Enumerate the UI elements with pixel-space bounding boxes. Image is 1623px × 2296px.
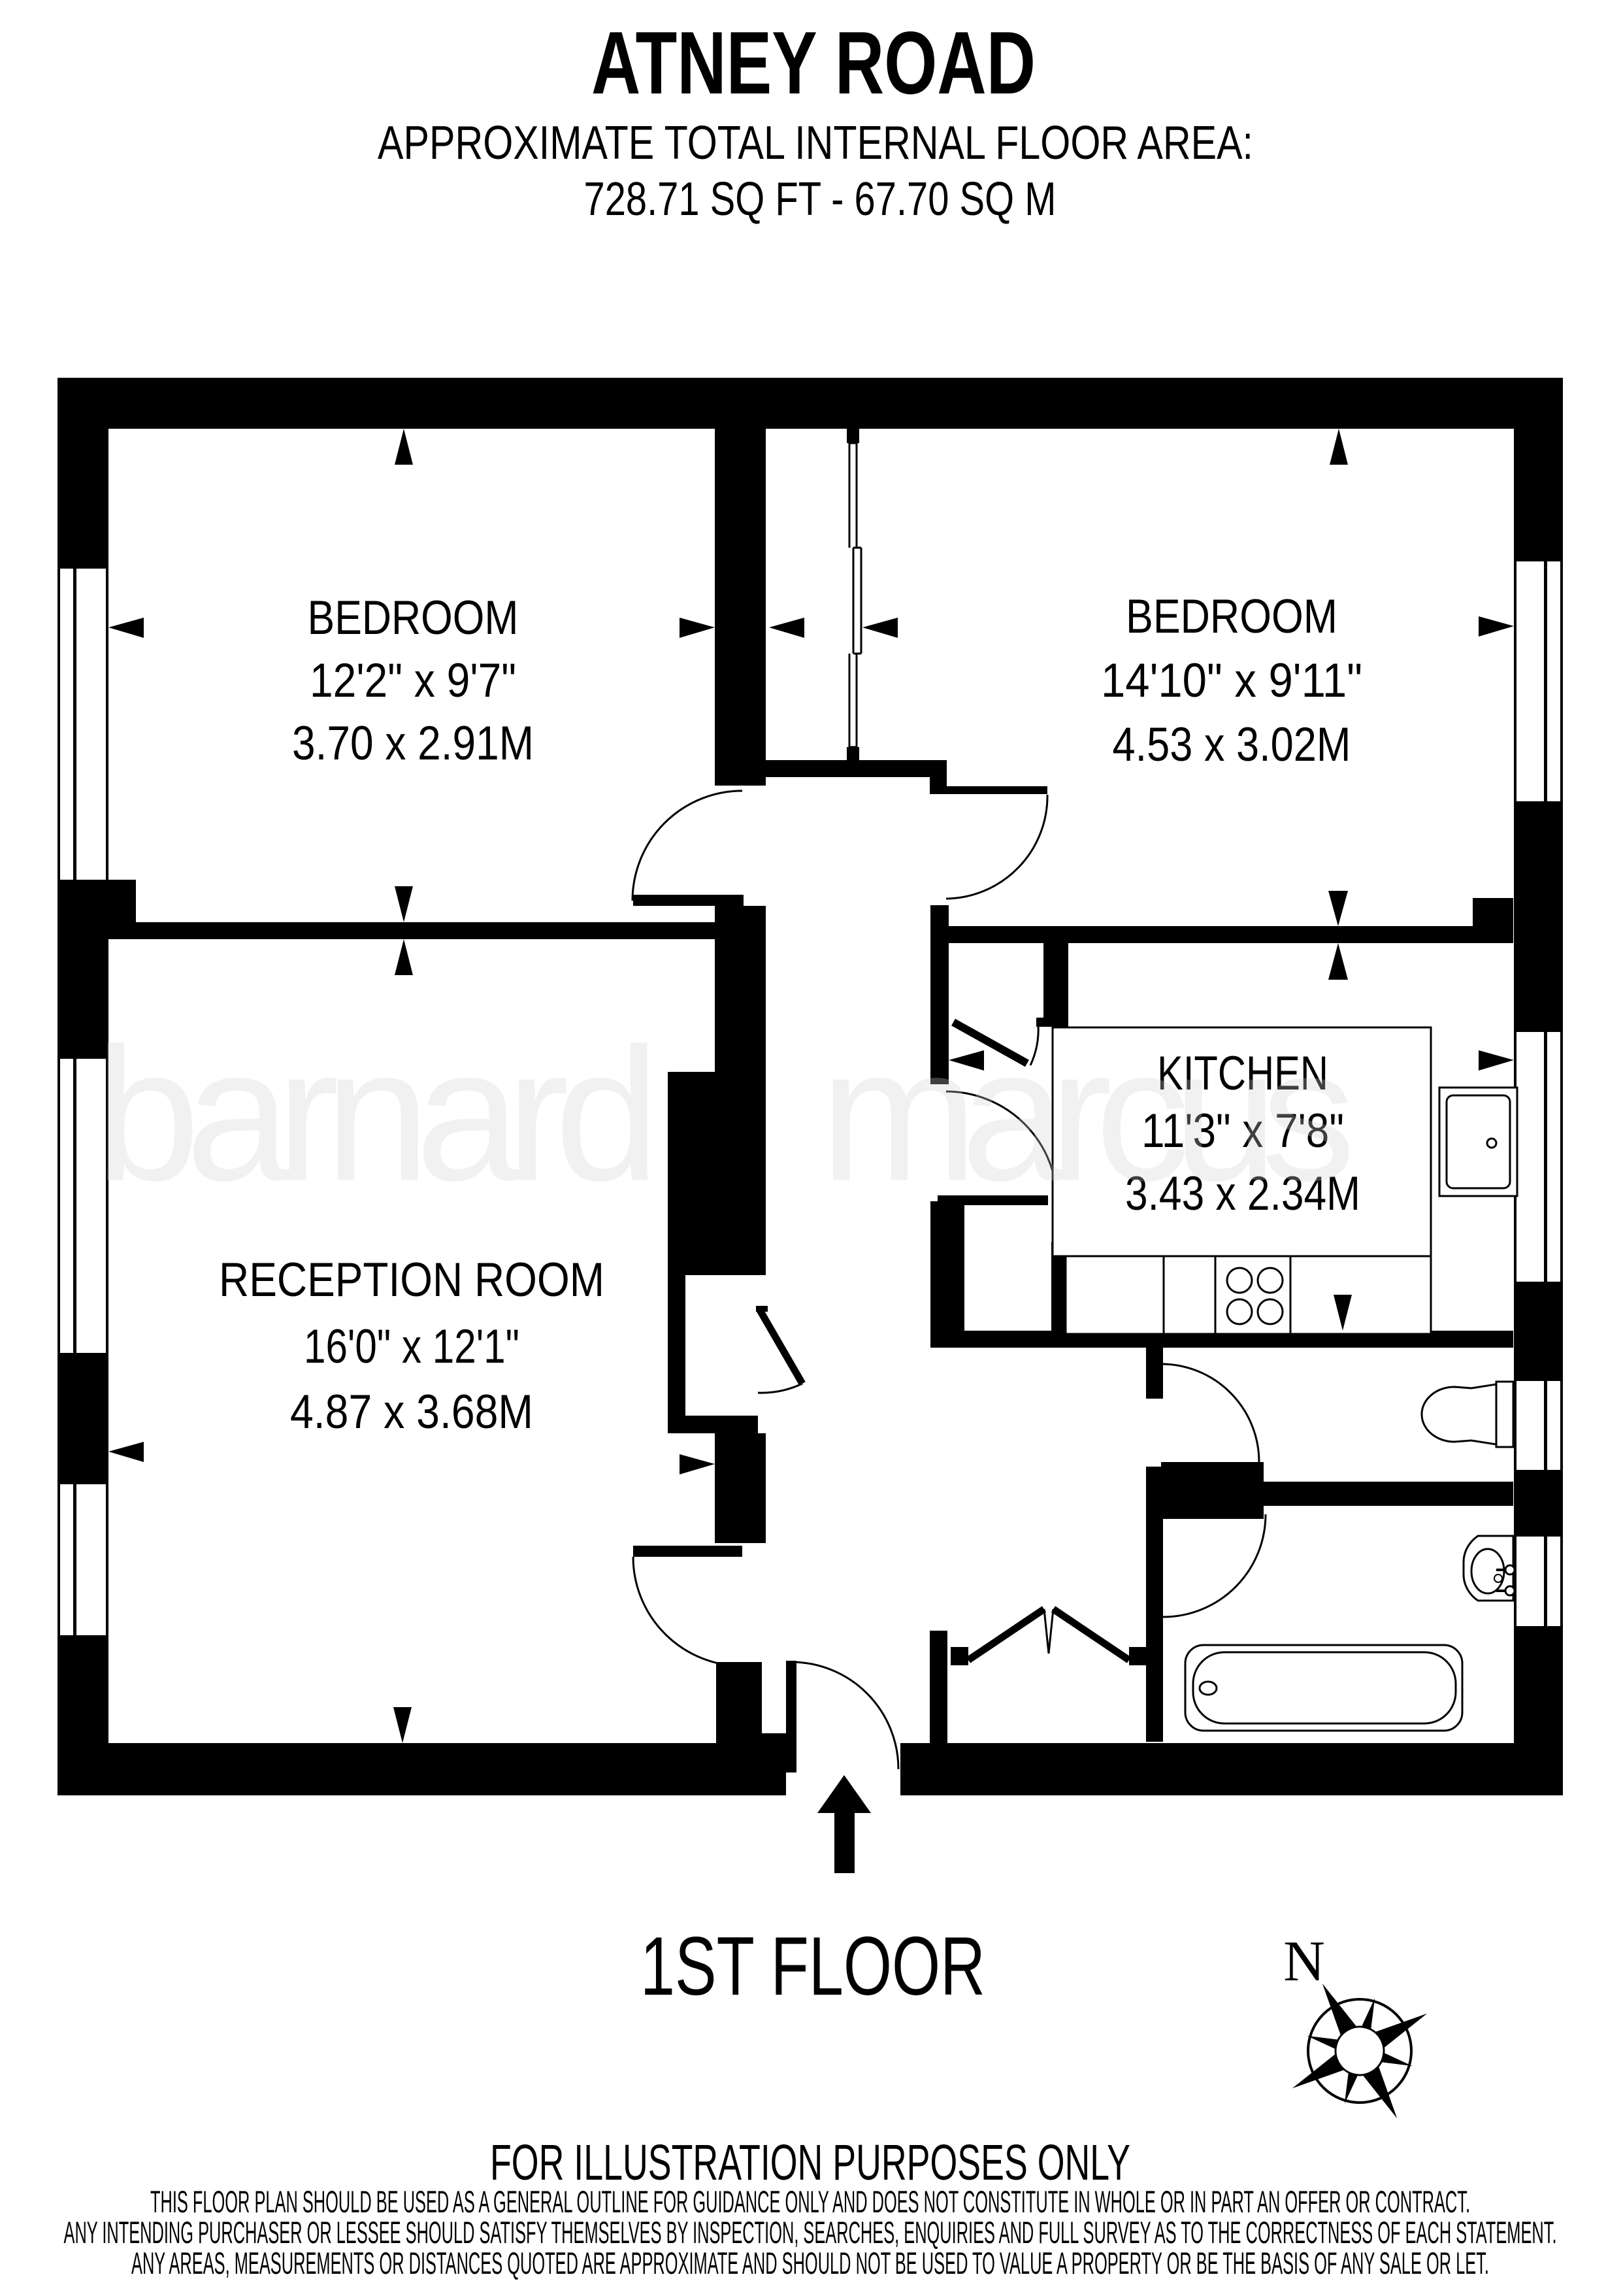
svg-text:16'0" x 12'1": 16'0" x 12'1" bbox=[304, 1320, 519, 1373]
svg-text:marcus: marcus bbox=[820, 1008, 1356, 1220]
svg-text:RECEPTION ROOM: RECEPTION ROOM bbox=[219, 1254, 604, 1306]
svg-text:THIS FLOOR PLAN SHOULD BE USED: THIS FLOOR PLAN SHOULD BE USED AS A GENE… bbox=[150, 2184, 1470, 2219]
svg-text:728.71 SQ FT - 67.70 SQ M: 728.71 SQ FT - 67.70 SQ M bbox=[584, 173, 1057, 225]
svg-text:4.87 x 3.68M: 4.87 x 3.68M bbox=[290, 1386, 533, 1439]
svg-text:ANY AREAS, MEASUREMENTS OR DIS: ANY AREAS, MEASUREMENTS OR DISTANCES QUO… bbox=[131, 2246, 1489, 2280]
svg-text:barnard: barnard bbox=[95, 1008, 660, 1220]
svg-text:ANY INTENDING PURCHASER OR LES: ANY INTENDING PURCHASER OR LESSEE SHOULD… bbox=[64, 2215, 1557, 2250]
svg-text:4.53 x 3.02M: 4.53 x 3.02M bbox=[1113, 718, 1351, 771]
svg-text:1ST FLOOR: 1ST FLOOR bbox=[640, 1920, 985, 2012]
svg-text:N: N bbox=[1283, 1930, 1325, 1993]
svg-text:BEDROOM: BEDROOM bbox=[308, 591, 519, 644]
svg-text:FOR ILLUSTRATION PURPOSES ONLY: FOR ILLUSTRATION PURPOSES ONLY bbox=[490, 2135, 1130, 2191]
svg-text:ATNEY ROAD: ATNEY ROAD bbox=[591, 13, 1036, 112]
svg-text:APPROXIMATE TOTAL INTERNAL FLO: APPROXIMATE TOTAL INTERNAL FLOOR AREA: bbox=[378, 117, 1253, 169]
svg-text:12'2" x 9'7": 12'2" x 9'7" bbox=[310, 654, 516, 707]
svg-text:14'10" x 9'11": 14'10" x 9'11" bbox=[1101, 654, 1362, 707]
svg-text:3.70 x 2.91M: 3.70 x 2.91M bbox=[292, 717, 534, 770]
svg-text:BEDROOM: BEDROOM bbox=[1126, 590, 1337, 643]
